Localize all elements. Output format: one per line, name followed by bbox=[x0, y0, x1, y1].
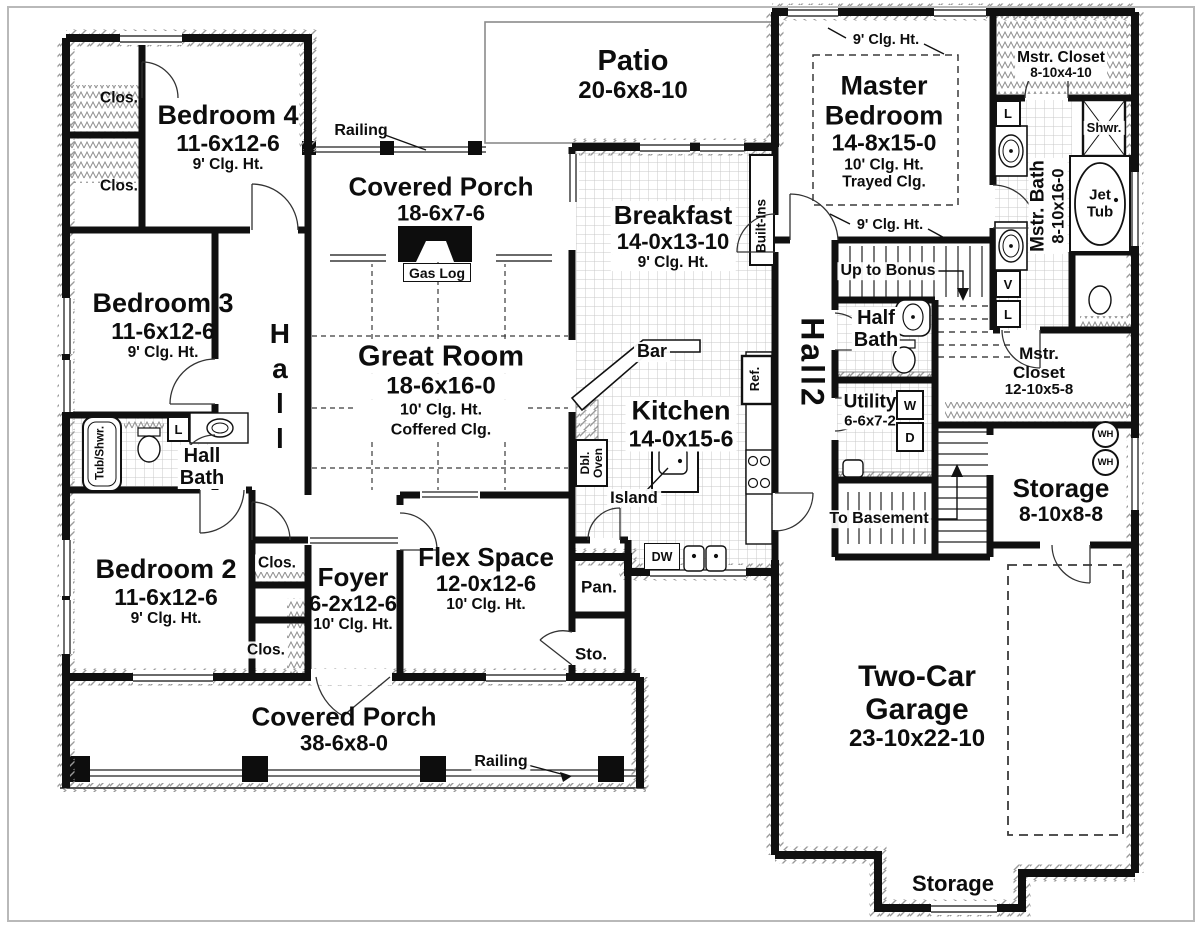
room-dims: 14-8x15-0 bbox=[825, 131, 944, 156]
room-name: Bedroom 2 bbox=[95, 555, 236, 585]
water-heater-label: WH bbox=[1092, 421, 1119, 448]
room-label-half-bath: Half Bath bbox=[852, 307, 900, 351]
cased-openings bbox=[310, 492, 478, 543]
room-dims: 11-6x12-6 bbox=[157, 131, 298, 156]
closet-label: Clos. bbox=[100, 177, 138, 194]
jet-tub-label: Jet Tub bbox=[1087, 188, 1113, 221]
room-label-garage: Two-Car Garage 23-10x22-10 bbox=[849, 660, 985, 752]
room-label-rear-porch: Covered Porch 18-6x7-6 bbox=[349, 173, 534, 226]
pantry-label: Pan. bbox=[578, 579, 620, 598]
room-name: Patio bbox=[578, 46, 687, 78]
room-ceiling: 10' Clg. Ht. bbox=[825, 156, 944, 173]
jet-tub-line1: Jet bbox=[1087, 188, 1113, 205]
vanity-label: V bbox=[995, 270, 1021, 298]
room-dims: 6-6x7-2 bbox=[842, 413, 899, 430]
room-label-bedroom3: Bedroom 3 11-6x12-6 9' Clg. Ht. bbox=[92, 289, 233, 361]
room-name: Bedroom 3 bbox=[92, 289, 233, 319]
to-basement-label: To Basement bbox=[826, 510, 931, 528]
room-dims: 14-0x13-10 bbox=[611, 230, 736, 254]
linen-label: L bbox=[995, 300, 1021, 328]
room-name: Bedroom bbox=[825, 101, 944, 131]
room-ceiling: 10' Clg. Ht. bbox=[309, 616, 397, 633]
linen-label: L bbox=[995, 100, 1021, 127]
room-label-utility: Utility 6-6x7-2 bbox=[842, 392, 899, 429]
double-oven-line2: Oven bbox=[592, 448, 605, 478]
room-dims: 18-6x7-6 bbox=[349, 201, 534, 225]
ceiling-note-bottom: 9' Clg. Ht. bbox=[854, 218, 926, 234]
room-label-bedroom2: Bedroom 2 11-6x12-6 9' Clg. Ht. bbox=[95, 555, 236, 627]
room-dims: 8-10x16-0 bbox=[1049, 158, 1067, 254]
room-label-front-porch: Covered Porch 38-6x8-0 bbox=[252, 703, 437, 756]
room-name: Covered Porch bbox=[349, 173, 534, 202]
room-dims: 20-6x8-10 bbox=[578, 78, 687, 104]
closet-label: Clos. bbox=[255, 554, 299, 571]
fireplace bbox=[398, 226, 472, 262]
railing-label: Railing bbox=[334, 122, 387, 140]
room-ceiling2: Coffered Clg. bbox=[354, 421, 528, 439]
room-ceiling: 9' Clg. Ht. bbox=[157, 156, 298, 173]
dishwasher-label: DW bbox=[644, 543, 680, 570]
room-name: Breakfast bbox=[611, 201, 736, 230]
water-heater-label: WH bbox=[1092, 449, 1119, 476]
room-name: Storage bbox=[1013, 474, 1110, 503]
room-dims: 18-6x16-0 bbox=[354, 373, 528, 399]
room-name: Foyer bbox=[309, 563, 397, 592]
fridge-label: Ref. bbox=[748, 367, 762, 392]
closet-label: Clos. bbox=[244, 641, 288, 658]
room-label-kitchen: Kitchen 14-0x15-6 bbox=[626, 397, 737, 452]
room-ceiling2: Trayed Clg. bbox=[825, 173, 944, 190]
ceiling-note-top: 9' Clg. Ht. bbox=[850, 33, 922, 49]
room-label-foyer: Foyer 6-2x12-6 10' Clg. Ht. bbox=[309, 563, 397, 633]
room-dims: 8-10x4-10 bbox=[1015, 66, 1107, 81]
room-name: Mstr. bbox=[1005, 345, 1073, 364]
room-dims: 11-6x12-6 bbox=[92, 319, 233, 344]
room-label-great-room: Great Room 18-6x16-0 10' Clg. Ht. Coffer… bbox=[354, 341, 528, 438]
room-label-storage-rear: Storage bbox=[912, 872, 994, 896]
room-name: Mstr. Bath bbox=[1028, 158, 1049, 254]
room-ceiling: 10' Clg. Ht. bbox=[418, 596, 554, 613]
room-name: Garage bbox=[849, 693, 985, 726]
room-label-patio: Patio 20-6x8-10 bbox=[578, 46, 687, 104]
washer-label: W bbox=[896, 390, 924, 420]
room-name: Great Room bbox=[354, 341, 528, 373]
linen-label: L bbox=[167, 416, 190, 442]
room-label-flex-space: Flex Space 12-0x12-6 10' Clg. Ht. bbox=[418, 543, 554, 613]
dryer-label: D bbox=[896, 422, 924, 452]
room-name: Hall bbox=[178, 445, 226, 467]
room-dims: 38-6x8-0 bbox=[252, 731, 437, 755]
room-name: Bedroom 4 bbox=[157, 101, 298, 131]
room-label-storage-side: Storage 8-10x8-8 bbox=[1013, 474, 1110, 526]
room-name: Kitchen bbox=[626, 397, 737, 427]
room-dims: 12-0x12-6 bbox=[418, 572, 554, 596]
room-label-hall2: Hall2 bbox=[794, 317, 829, 408]
room-name: Half bbox=[852, 307, 900, 329]
island-label: Island bbox=[607, 489, 661, 507]
room-dims: 6-2x12-6 bbox=[309, 592, 397, 616]
room-name: Bath bbox=[178, 467, 226, 489]
room-dims: 8-10x8-8 bbox=[1013, 503, 1110, 526]
room-label-hall-bath: Hall Bath bbox=[178, 445, 226, 489]
room-name: Closet bbox=[1005, 364, 1073, 383]
room-name: Two-Car bbox=[849, 660, 985, 693]
floor-plan: Bedroom 4 11-6x12-6 9' Clg. Ht. Bedroom … bbox=[0, 0, 1200, 927]
room-dims: 14-0x15-6 bbox=[626, 426, 737, 451]
room-label-master-bath: Mstr. Bath 8-10x16-0 bbox=[1028, 158, 1067, 254]
room-dims: 23-10x22-10 bbox=[849, 726, 985, 752]
storage-closet-label: Sto. bbox=[572, 646, 610, 665]
closet-label: Clos. bbox=[100, 89, 138, 106]
room-name: Covered Porch bbox=[252, 703, 437, 732]
jet-tub-line2: Tub bbox=[1087, 204, 1113, 221]
built-ins-label: Built-Ins bbox=[755, 199, 770, 253]
room-ceiling: 10' Clg. Ht. bbox=[354, 400, 528, 422]
room-name: Bath bbox=[852, 329, 900, 351]
shower-label: Shwr. bbox=[1084, 121, 1125, 135]
room-label-hall: Hall bbox=[264, 318, 295, 458]
railing-label: Railing bbox=[471, 753, 530, 771]
room-name: Mstr. Closet bbox=[1015, 49, 1107, 66]
up-to-bonus-label: Up to Bonus bbox=[837, 262, 938, 280]
room-label-bedroom4: Bedroom 4 11-6x12-6 9' Clg. Ht. bbox=[157, 101, 298, 173]
garage-overhead-outline bbox=[1008, 565, 1123, 835]
room-label-master-bedroom: Master Bedroom 14-8x15-0 10' Clg. Ht. Tr… bbox=[825, 72, 944, 191]
room-ceiling: 9' Clg. Ht. bbox=[92, 344, 233, 361]
room-label-master-closet-side: Mstr. Closet 12-10x5-8 bbox=[1005, 345, 1073, 399]
bar-label: Bar bbox=[634, 342, 670, 362]
tub-shower-label: Tub/Shwr. bbox=[95, 426, 108, 480]
room-ceiling: 9' Clg. Ht. bbox=[95, 610, 236, 627]
room-name: Master bbox=[825, 72, 944, 102]
room-dims: 11-6x12-6 bbox=[95, 585, 236, 610]
room-dims: 12-10x5-8 bbox=[1005, 382, 1073, 399]
room-ceiling: 9' Clg. Ht. bbox=[611, 254, 736, 271]
gas-log-label: Gas Log bbox=[403, 263, 471, 282]
room-label-breakfast: Breakfast 14-0x13-10 9' Clg. Ht. bbox=[611, 201, 736, 271]
room-name: Utility bbox=[842, 392, 899, 413]
room-label-master-closet-top: Mstr. Closet 8-10x4-10 bbox=[1015, 49, 1107, 81]
double-oven-label: Dbl. Oven bbox=[579, 448, 605, 478]
room-name: Flex Space bbox=[418, 543, 554, 572]
